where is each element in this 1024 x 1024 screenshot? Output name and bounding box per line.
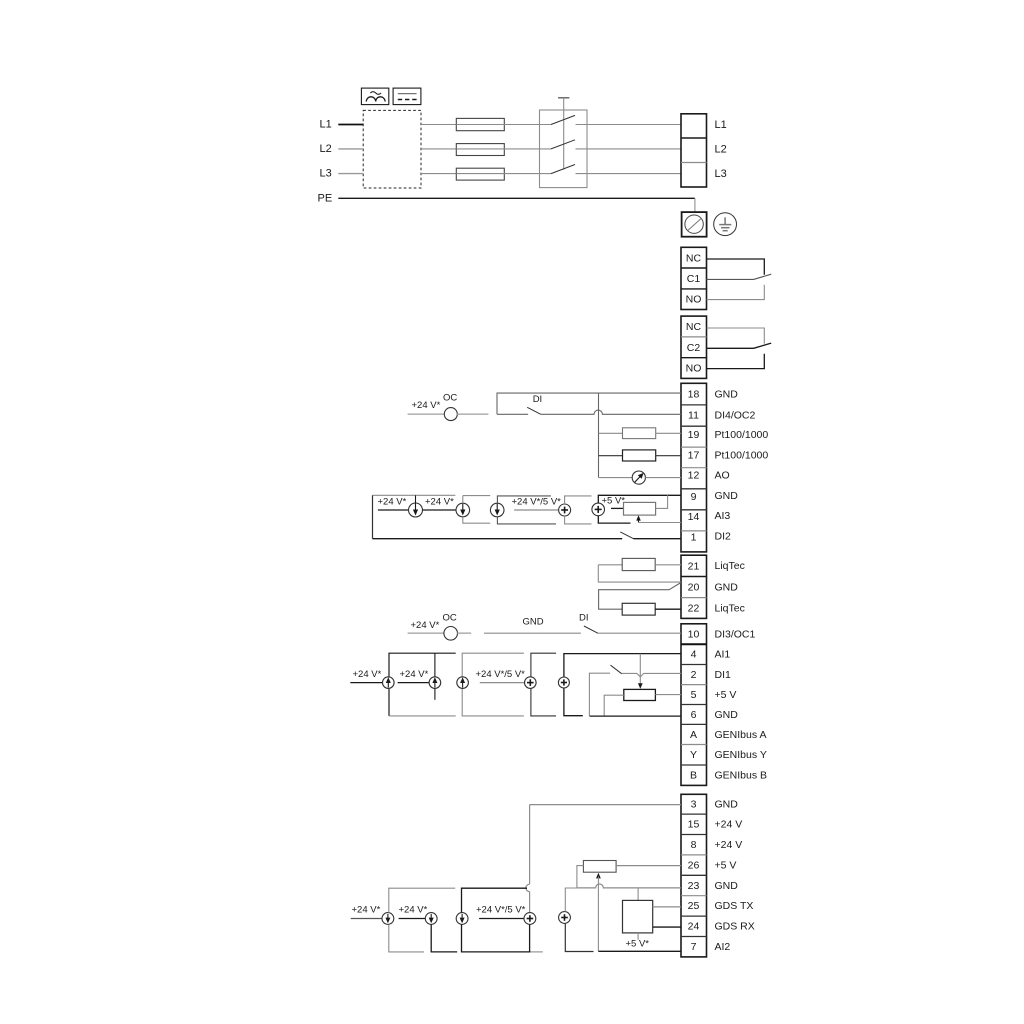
svg-text:23: 23 [688,880,700,892]
svg-text:DI3/OC1: DI3/OC1 [715,628,756,640]
svg-text:DI2: DI2 [715,530,732,542]
svg-text:+24 V: +24 V [715,839,743,851]
svg-text:NO: NO [686,294,702,306]
svg-text:GND: GND [715,490,739,502]
svg-text:21: 21 [688,560,700,572]
svg-text:14: 14 [688,511,700,523]
svg-text:GDS TX: GDS TX [715,900,754,912]
svg-text:NC: NC [686,252,702,264]
svg-text:LiqTec: LiqTec [715,602,745,614]
svg-text:11: 11 [688,410,699,422]
svg-text:8: 8 [691,839,697,851]
svg-text:GND: GND [715,388,739,400]
svg-text:+24 V*: +24 V* [352,905,381,916]
svg-text:4: 4 [691,649,697,661]
svg-text:+24 V: +24 V [715,819,743,831]
svg-text:A: A [690,729,697,741]
svg-text:GND: GND [715,880,739,892]
svg-text:22: 22 [688,603,700,615]
svg-text:DI1: DI1 [715,669,732,681]
svg-text:5: 5 [691,689,697,701]
svg-text:NO: NO [686,363,702,375]
svg-text:NC: NC [686,321,702,333]
svg-text:LiqTec: LiqTec [715,560,745,572]
svg-text:+24 V*: +24 V* [353,669,382,680]
svg-text:GDS RX: GDS RX [715,921,755,933]
svg-text:DI4/OC2: DI4/OC2 [715,410,756,422]
svg-text:GND: GND [715,799,739,811]
svg-text:+5 V*: +5 V* [602,496,626,507]
svg-text:DI: DI [533,394,543,405]
svg-text:C2: C2 [687,342,701,354]
svg-text:7: 7 [691,941,697,953]
svg-text:GND: GND [715,581,739,593]
svg-text:L2: L2 [715,144,727,156]
svg-text:B: B [690,770,697,782]
svg-text:15: 15 [688,819,700,831]
svg-text:Y: Y [690,749,697,761]
svg-text:1: 1 [691,531,697,543]
svg-text:AO: AO [715,470,730,482]
svg-text:DI: DI [579,613,589,624]
svg-text:OC: OC [443,613,457,624]
svg-text:GENIbus B: GENIbus B [715,770,768,782]
svg-text:20: 20 [688,582,700,594]
svg-text:18: 18 [688,388,700,400]
svg-text:GENIbus A: GENIbus A [715,729,767,741]
svg-text:26: 26 [688,859,700,871]
svg-text:24: 24 [688,921,700,933]
svg-text:+24 V*/5 V*: +24 V*/5 V* [512,497,562,508]
svg-text:OC: OC [443,392,457,403]
svg-text:L1: L1 [715,119,727,131]
svg-text:+5 V: +5 V [715,689,737,701]
svg-text:19: 19 [688,429,700,441]
svg-text:GENIbus Y: GENIbus Y [715,749,767,761]
svg-text:GND: GND [715,709,739,721]
svg-text:GND: GND [523,617,544,628]
svg-text:+24 V*: +24 V* [378,497,407,508]
svg-text:2: 2 [691,669,697,681]
svg-text:17: 17 [688,449,700,461]
svg-text:3: 3 [691,799,697,811]
svg-text:25: 25 [688,900,700,912]
svg-text:AI2: AI2 [715,941,731,953]
svg-text:+24 V*: +24 V* [411,620,440,631]
svg-text:+24 V*/5 V*: +24 V*/5 V* [476,669,526,680]
svg-text:AI1: AI1 [715,649,731,661]
svg-text:L3: L3 [320,168,332,180]
svg-text:10: 10 [688,628,700,640]
svg-text:L2: L2 [320,143,332,155]
svg-text:9: 9 [691,491,697,503]
svg-text:+5 V: +5 V [715,859,737,871]
svg-text:AI3: AI3 [715,510,731,522]
svg-text:Pt100/1000: Pt100/1000 [715,429,769,441]
svg-text:L3: L3 [715,168,727,180]
svg-text:C1: C1 [687,273,701,285]
svg-text:+24 V*/5 V*: +24 V*/5 V* [476,905,526,916]
svg-text:6: 6 [691,709,697,721]
svg-text:L1: L1 [320,118,332,130]
svg-text:12: 12 [688,470,700,482]
svg-text:+24 V*: +24 V* [412,400,441,411]
svg-text:+24 V*: +24 V* [425,497,454,508]
svg-text:PE: PE [318,192,333,204]
svg-text:Pt100/1000: Pt100/1000 [715,449,769,461]
svg-text:+24 V*: +24 V* [400,669,429,680]
svg-text:+5 V*: +5 V* [626,939,650,950]
svg-text:+24 V*: +24 V* [399,905,428,916]
